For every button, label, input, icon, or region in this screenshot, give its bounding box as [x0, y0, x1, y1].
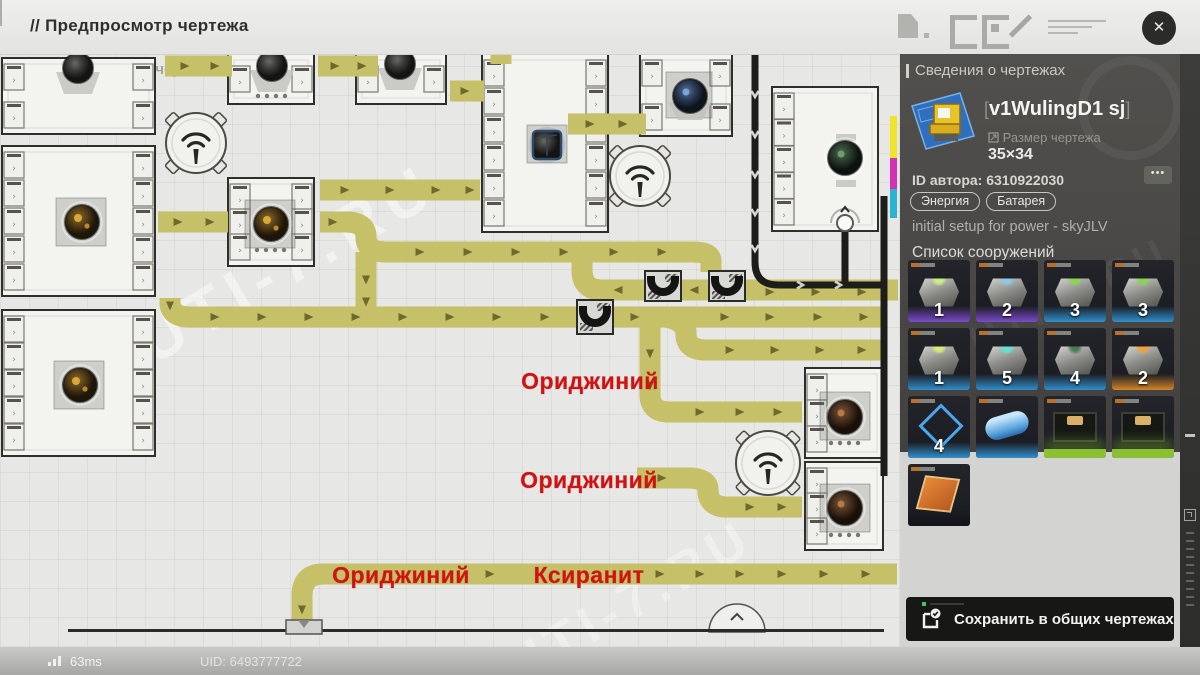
svg-text:›: ›	[782, 132, 786, 142]
resource-label-xiranite: Ксиранит	[534, 562, 645, 588]
tile-count: 4	[1044, 368, 1106, 389]
structure-tile[interactable]: 2	[1112, 328, 1174, 390]
blueprint-size-row: Размер чертежа	[988, 130, 1101, 145]
svg-text:›: ›	[492, 128, 496, 138]
fine-print-line	[1048, 20, 1106, 22]
svg-text:›: ›	[594, 100, 598, 110]
svg-text:›: ›	[815, 505, 819, 515]
svg-text:›: ›	[238, 221, 242, 231]
svg-text:›: ›	[12, 220, 16, 230]
svg-text:›: ›	[650, 72, 654, 82]
svg-text:›: ›	[300, 78, 304, 88]
tag-battery: Батарея	[986, 192, 1056, 211]
svg-text:›: ›	[141, 436, 145, 446]
map-bottom-line	[68, 629, 884, 632]
svg-text:›: ›	[594, 212, 598, 222]
tile-code-chip	[1047, 263, 1071, 267]
dot-icon	[924, 33, 929, 38]
save-button-label: Сохранить в общих чертежах	[954, 611, 1174, 628]
antenna-tower	[165, 112, 227, 174]
svg-text:›: ›	[815, 438, 819, 448]
blueprint-info-panel: Сведения о чертежах [v1WulingD1 sj] Разм…	[900, 54, 1180, 647]
pencil-icon	[1009, 14, 1032, 37]
tile-code-chip	[1115, 331, 1139, 335]
svg-text:›: ›	[141, 114, 145, 124]
svg-text:›: ›	[12, 276, 16, 286]
export-icon	[1184, 509, 1196, 521]
svg-text:›: ›	[141, 76, 145, 86]
edge-strip-yellow	[890, 116, 897, 158]
svg-text:›: ›	[782, 211, 786, 221]
svg-text:›: ›	[782, 158, 786, 168]
svg-text:›: ›	[12, 382, 16, 392]
tile-code-chip	[1047, 331, 1071, 335]
blueprint-size-value: 35×34	[988, 146, 1033, 164]
status-bar: 63ms UID: 6493777722	[0, 647, 1200, 675]
crystal-cube	[529, 127, 565, 163]
structure-machine-icon	[1121, 412, 1165, 442]
svg-text:›: ›	[432, 78, 436, 88]
document-icon	[898, 14, 918, 38]
structure-tile[interactable]	[976, 396, 1038, 458]
svg-text:›: ›	[492, 100, 496, 110]
svg-text:›: ›	[141, 192, 145, 202]
author-id: ID автора: 6310922030	[912, 172, 1064, 188]
svg-text:›: ›	[594, 72, 598, 82]
tile-code-chip	[1115, 399, 1139, 403]
antenna-tower	[609, 145, 671, 207]
tile-count: 3	[1112, 300, 1174, 321]
structure-machine-icon	[1053, 412, 1097, 442]
structure-tile[interactable]: 3	[1112, 260, 1174, 322]
tile-count: 2	[1112, 368, 1174, 389]
tile-code-chip	[911, 467, 935, 471]
panel-side-rail[interactable]	[1180, 54, 1200, 647]
svg-text:›: ›	[650, 116, 654, 126]
tile-code-chip	[1115, 263, 1139, 267]
bracket-glyph-icon	[982, 15, 1009, 49]
svg-text:›: ›	[12, 409, 16, 419]
resource-label-originium-2: Ориджиний	[520, 467, 658, 493]
svg-text:›: ›	[492, 212, 496, 222]
svg-text:›: ›	[300, 221, 304, 231]
structure-machine-icon	[916, 475, 961, 513]
tile-count: 5	[976, 368, 1038, 389]
svg-text:›: ›	[141, 409, 145, 419]
fine-print-line	[1048, 32, 1078, 34]
tile-accent-bar	[976, 442, 1038, 458]
structure-tile[interactable]	[908, 464, 970, 526]
tile-accent-bar	[1112, 449, 1174, 458]
svg-text:›: ›	[141, 220, 145, 230]
svg-text:›: ›	[594, 184, 598, 194]
blueprint-thumbnail	[908, 90, 978, 152]
svg-text:›: ›	[12, 355, 16, 365]
antenna-tower	[735, 430, 800, 495]
blueprint-name: [v1WulingD1 sj]	[984, 98, 1130, 121]
svg-text:›: ›	[141, 328, 145, 338]
close-button[interactable]: ✕	[1142, 11, 1176, 45]
structure-tile[interactable]: 5	[976, 328, 1038, 390]
structure-tile[interactable]: 1	[908, 260, 970, 322]
svg-text:›: ›	[718, 116, 722, 126]
blueprint-map-viewport[interactable]: WUTI-7.RU WUTI-7.RU ‖ Предпросмотр черте…	[0, 54, 900, 647]
edge-strip-magenta	[890, 158, 897, 189]
panel-title: Сведения о чертежах	[915, 62, 1065, 79]
svg-text:›: ›	[12, 328, 16, 338]
resource-label-originium-1: Ориджиний	[521, 368, 659, 394]
save-indicator-bar	[930, 603, 964, 605]
save-to-shared-blueprints-button[interactable]: Сохранить в общих чертежах	[906, 597, 1174, 641]
svg-text:›: ›	[141, 382, 145, 392]
tile-count: 2	[976, 300, 1038, 321]
more-options-button[interactable]: •••	[1144, 166, 1172, 184]
structure-tile[interactable]: 4	[1044, 328, 1106, 390]
blueprint-map-canvas: WUTI-7.RU WUTI-7.RU ‖ Предпросмотр черте…	[0, 54, 900, 647]
svg-text:›: ›	[300, 196, 304, 206]
tile-count: 1	[908, 300, 970, 321]
ping-value: 63ms	[70, 654, 102, 669]
svg-text:›: ›	[366, 78, 370, 88]
svg-text:›: ›	[815, 530, 819, 540]
scroll-indicator[interactable]	[1185, 434, 1195, 437]
structure-tile[interactable]: 3	[1044, 260, 1106, 322]
structure-tile[interactable]	[1112, 396, 1174, 458]
svg-text:›: ›	[238, 78, 242, 88]
save-check-icon	[920, 608, 942, 630]
structure-machine-icon	[983, 408, 1032, 442]
antenna-tower-partial	[709, 604, 765, 632]
page-title: // Предпросмотр чертежа	[30, 16, 249, 36]
edge-strip-cyan	[890, 189, 897, 218]
resize-icon	[988, 132, 999, 143]
svg-text:›: ›	[782, 105, 786, 115]
top-bar: // Предпросмотр чертежа ✕	[0, 0, 1200, 55]
svg-text:›: ›	[141, 248, 145, 258]
tag-energy: Энергия	[910, 192, 980, 211]
tag-list: Энергия Батарея	[910, 192, 1056, 211]
tile-code-chip	[979, 399, 1003, 403]
tile-count: 1	[908, 368, 970, 389]
tile-code-chip	[1047, 399, 1071, 403]
svg-text:›: ›	[141, 355, 145, 365]
structure-tile[interactable]: 2	[976, 260, 1038, 322]
svg-text:›: ›	[815, 412, 819, 422]
tile-accent-bar	[1044, 449, 1106, 458]
svg-text:›: ›	[300, 246, 304, 256]
structure-tile-grid: 1 2 3 3 1 5 4 2 4	[908, 260, 1176, 526]
svg-text:›: ›	[238, 246, 242, 256]
tile-code-chip	[911, 331, 935, 335]
uid-value: UID: 6493777722	[200, 654, 302, 669]
tile-count: 3	[1044, 300, 1106, 321]
tile-count: 4	[908, 436, 970, 457]
svg-text:›: ›	[12, 248, 16, 258]
tile-code-chip	[979, 263, 1003, 267]
belt-end-piece	[286, 620, 322, 634]
svg-text:›: ›	[12, 164, 16, 174]
divider	[0, 0, 2, 26]
tile-code-chip	[979, 331, 1003, 335]
structure-tile[interactable]: 1	[908, 328, 970, 390]
tile-code-chip	[911, 263, 935, 267]
svg-text:›: ›	[594, 156, 598, 166]
svg-text:›: ›	[12, 192, 16, 202]
blueprint-preview-screen: WUTI-7.RU WUTI-7.RU ‖ Предпросмотр черте…	[0, 0, 1200, 675]
resource-label-originium-3: Ориджиний	[332, 562, 470, 588]
svg-text:›: ›	[12, 76, 16, 86]
structure-tile[interactable]	[1044, 396, 1106, 458]
signal-icon	[48, 656, 61, 666]
svg-text:›: ›	[238, 196, 242, 206]
svg-text:›: ›	[718, 72, 722, 82]
side-rail-caption	[1186, 532, 1194, 612]
tile-accent-bar	[908, 510, 970, 526]
svg-text:›: ›	[492, 72, 496, 82]
structure-tile[interactable]: 4	[908, 396, 970, 458]
tile-code-chip	[911, 399, 935, 403]
svg-text:›: ›	[141, 276, 145, 286]
svg-text:›: ›	[492, 184, 496, 194]
svg-text:›: ›	[815, 386, 819, 396]
fine-print-line	[1048, 26, 1092, 28]
save-indicator-dot	[922, 602, 926, 606]
svg-text:›: ›	[815, 480, 819, 490]
svg-text:›: ›	[12, 436, 16, 446]
blueprint-description: initial setup for power - skyJLV	[912, 219, 1108, 235]
svg-text:›: ›	[782, 185, 786, 195]
svg-text:›: ›	[492, 156, 496, 166]
svg-text:›: ›	[12, 114, 16, 124]
bracket-glyph-icon	[950, 15, 977, 49]
svg-text:›: ›	[141, 164, 145, 174]
panel-title-bar-icon	[906, 64, 909, 78]
